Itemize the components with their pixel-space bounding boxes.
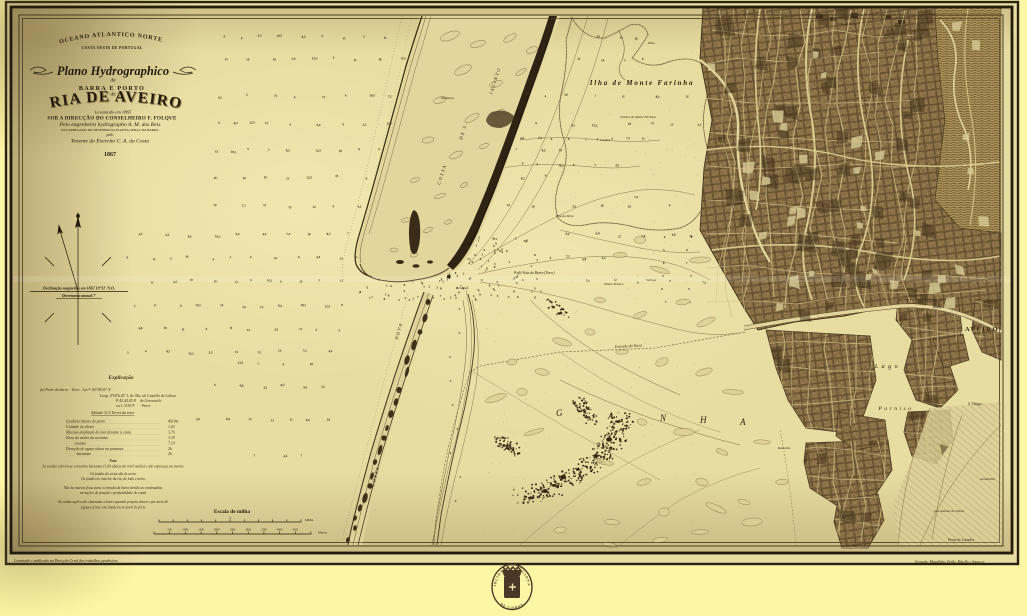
svg-text:Monte Branco: Monte Branco bbox=[603, 282, 624, 286]
svg-text:13: 13 bbox=[248, 417, 252, 421]
svg-text:Pesqueira: Pesqueira bbox=[493, 436, 509, 440]
svg-text:10,2: 10,2 bbox=[300, 303, 306, 308]
svg-text:5,6: 5,6 bbox=[291, 57, 296, 61]
svg-text:Declinação magnetica em 1867 1: Declinação magnetica em 1867 19°31' N.O. bbox=[42, 286, 115, 291]
svg-text:As embarcações são chamadas a: As embarcações são chamadas a barra quan… bbox=[57, 500, 168, 504]
svg-text:4h10m: 4h10m bbox=[168, 420, 179, 424]
svg-text:signaes feitos com bandeira no: signaes feitos com bandeira no farol do … bbox=[81, 506, 146, 510]
svg-text:G: G bbox=[556, 408, 563, 418]
svg-text:3,5: 3,5 bbox=[697, 123, 702, 127]
svg-text:13: 13 bbox=[235, 350, 239, 354]
svg-text:10,2: 10,2 bbox=[230, 150, 236, 155]
svg-text:Lago: Lago bbox=[874, 364, 901, 370]
svg-text:N: N bbox=[659, 413, 667, 423]
svg-text:Escala de milha: Escala de milha bbox=[214, 509, 251, 515]
svg-text:Parniso: Parniso bbox=[878, 406, 914, 412]
svg-text:6,8: 6,8 bbox=[138, 326, 143, 330]
svg-text:1867: 1867 bbox=[104, 152, 116, 158]
svg-text:7,5: 7,5 bbox=[259, 305, 263, 309]
svg-text:Estabelecimento do porto: Estabelecimento do porto bbox=[65, 420, 105, 424]
svg-text:10,2: 10,2 bbox=[215, 234, 221, 238]
svg-text:3000: 3000 bbox=[245, 529, 251, 532]
svg-text:12,5: 12,5 bbox=[195, 303, 201, 307]
svg-text:Marinora: Marinora bbox=[440, 96, 454, 100]
svg-text:Decremento annual 7': Decremento annual 7' bbox=[61, 294, 96, 298]
svg-text:1500: 1500 bbox=[198, 529, 204, 532]
svg-text:Estrada do Norte: Estrada do Norte bbox=[905, 28, 929, 32]
svg-text:Tenente do Exercito C. A. da C: Tenente do Exercito C. A. da Costa bbox=[71, 139, 150, 145]
svg-text:8,2: 8,2 bbox=[542, 148, 547, 152]
svg-text:Milha: Milha bbox=[305, 518, 314, 522]
svg-text:Mira: Mira bbox=[647, 41, 655, 45]
svg-text:12,5: 12,5 bbox=[315, 149, 321, 153]
svg-text:· · vasante: · · vasante bbox=[66, 442, 86, 446]
svg-text:AVEIRO: AVEIRO bbox=[965, 326, 999, 333]
svg-text:variações de posição e profund: variações de posição e profundidade do c… bbox=[80, 491, 146, 495]
svg-text:7,5: 7,5 bbox=[626, 136, 631, 140]
svg-text:12,5: 12,5 bbox=[325, 304, 331, 308]
svg-text:½: ½ bbox=[229, 516, 232, 520]
svg-text:4,2: 4,2 bbox=[218, 95, 222, 99]
svg-text:Ilha de Monte Farinha: Ilha de Monte Farinha bbox=[589, 79, 695, 87]
svg-text:6,8: 6,8 bbox=[672, 233, 677, 237]
svg-text:Hora da media da enchente: Hora da media da enchente bbox=[65, 436, 108, 440]
svg-text:8,2: 8,2 bbox=[236, 232, 240, 236]
svg-text:4,2: 4,2 bbox=[357, 204, 361, 208]
svg-text:12,5: 12,5 bbox=[249, 120, 255, 125]
svg-text:Perdida: Perdida bbox=[455, 286, 467, 290]
svg-text:· · baixamar: · · baixamar bbox=[66, 452, 92, 456]
svg-text:pelo: pelo bbox=[106, 132, 114, 137]
svg-text:ou 1. 8.55 P · · Paris: ou 1. 8.55 P · · Paris bbox=[116, 404, 151, 408]
svg-text:da: da bbox=[111, 79, 117, 84]
svg-text:7,5: 7,5 bbox=[286, 232, 290, 236]
svg-text:8,2: 8,2 bbox=[188, 234, 192, 238]
svg-text:Levantado em 1865: Levantado em 1865 bbox=[94, 110, 132, 115]
svg-text:12,5: 12,5 bbox=[238, 361, 244, 365]
svg-text:9,4: 9,4 bbox=[596, 231, 600, 235]
svg-text:S. Thiago: S. Thiago bbox=[968, 402, 982, 406]
svg-text:2h: 2h bbox=[168, 452, 172, 456]
svg-text:12,5: 12,5 bbox=[312, 56, 318, 60]
svg-text:8,2: 8,2 bbox=[286, 148, 291, 152]
svg-text:11: 11 bbox=[622, 94, 625, 98]
svg-text:Duração de aguas altura na pra: Duração de aguas altura na praamar bbox=[65, 447, 124, 451]
svg-text:COSTA OESTE DE PORTUGAL: COSTA OESTE DE PORTUGAL bbox=[81, 46, 142, 50]
svg-text:Ponte de Cacador: Ponte de Cacador bbox=[947, 538, 975, 542]
svg-text:Unidade de altura: Unidade de altura bbox=[66, 425, 94, 429]
svg-text:(a) Porte da barra - Torre L: (a) Porte da barra - Torre Lat.de 40°38'… bbox=[40, 388, 111, 392]
svg-text:12: 12 bbox=[263, 203, 267, 207]
svg-text:Metros: Metros bbox=[318, 531, 328, 535]
svg-text:8,2: 8,2 bbox=[302, 35, 306, 39]
svg-text:12,5: 12,5 bbox=[592, 123, 598, 128]
svg-text:3,5: 3,5 bbox=[362, 123, 366, 127]
svg-text:500: 500 bbox=[168, 529, 173, 532]
svg-text:5,6: 5,6 bbox=[196, 417, 201, 421]
svg-text:Altitude 32.5 Torres da torre: Altitude 32.5 Torres da torre bbox=[90, 411, 135, 415]
svg-text:S.ta Antonio do Tilloso: S.ta Antonio do Tilloso bbox=[934, 509, 965, 513]
svg-text:2000: 2000 bbox=[214, 529, 220, 532]
svg-text:9,4: 9,4 bbox=[317, 123, 321, 127]
svg-text:7,5: 7,5 bbox=[566, 255, 570, 259]
svg-text:8,2: 8,2 bbox=[234, 121, 239, 125]
svg-text:7,5: 7,5 bbox=[242, 203, 247, 207]
svg-text:7.10: 7.10 bbox=[168, 442, 175, 446]
svg-text:Ilha do Meio: Ilha do Meio bbox=[555, 214, 574, 218]
svg-text:Os fundos da costa são de arei: Os fundos da costa são de areia bbox=[90, 472, 136, 476]
svg-text:Sal: Sal bbox=[634, 195, 638, 199]
svg-text:8,2: 8,2 bbox=[656, 95, 661, 99]
svg-text:SOB A DIRECÇÃO DO CONSELHEIRO: SOB A DIRECÇÃO DO CONSELHEIRO F. FOLQUE bbox=[47, 116, 177, 122]
svg-text:1000: 1000 bbox=[183, 529, 189, 532]
svg-text:8,2: 8,2 bbox=[521, 176, 526, 180]
svg-text:Lavãos: Lavãos bbox=[599, 138, 610, 142]
svg-text:Poço Vista da Barra (Torre): Poço Vista da Barra (Torre) bbox=[513, 271, 555, 275]
svg-text:2500: 2500 bbox=[230, 529, 236, 532]
svg-text:10,2: 10,2 bbox=[369, 93, 375, 97]
svg-text:P 43.44.45 P. de Greenwich: P 43.44.45 P. de Greenwich bbox=[115, 399, 161, 403]
svg-text:Não ha marcas fixas para a ent: Não ha marcas fixas para a entrada da ba… bbox=[63, 486, 163, 490]
svg-text:10,2: 10,2 bbox=[276, 33, 282, 38]
svg-text:4,2: 4,2 bbox=[329, 349, 333, 353]
svg-text:Explicação: Explicação bbox=[107, 375, 134, 381]
svg-text:3.18: 3.18 bbox=[168, 436, 175, 440]
svg-text:12,5: 12,5 bbox=[306, 176, 312, 180]
svg-text:Long 4°54'6.25" L de Obs. do: Long 4°54'6.25" L de Obs. do Castello de… bbox=[99, 394, 176, 398]
svg-text:3,5: 3,5 bbox=[321, 385, 326, 389]
svg-text:Esteiro de Monte Farinha: Esteiro de Monte Farinha bbox=[619, 115, 655, 119]
svg-text:Gondesilho: Gondesilho bbox=[980, 477, 996, 481]
svg-text:12,5: 12,5 bbox=[400, 56, 406, 60]
svg-text:5,6: 5,6 bbox=[564, 93, 568, 97]
svg-text:4,2: 4,2 bbox=[262, 232, 267, 236]
svg-text:3,5: 3,5 bbox=[242, 305, 246, 309]
svg-text:12,5: 12,5 bbox=[188, 351, 194, 355]
svg-text:Ramalho: Ramalho bbox=[777, 446, 791, 450]
svg-text:4500: 4500 bbox=[293, 529, 299, 532]
svg-text:Maxima amplitude do mar devant: Maxima amplitude do mar devante a costa bbox=[65, 431, 131, 435]
svg-text:H: H bbox=[699, 415, 707, 425]
svg-text:11: 11 bbox=[299, 327, 302, 331]
svg-text:A: A bbox=[607, 411, 614, 421]
svg-text:5,6: 5,6 bbox=[306, 418, 310, 422]
svg-text:3,5: 3,5 bbox=[209, 350, 214, 354]
svg-text:10,2: 10,2 bbox=[558, 163, 564, 167]
svg-text:4000: 4000 bbox=[277, 529, 283, 532]
svg-text:A: A bbox=[739, 417, 746, 427]
svg-text:3500: 3500 bbox=[261, 529, 267, 532]
svg-text:Nota: Nota bbox=[108, 459, 116, 463]
svg-text:Levantado e publicado na Direc: Levantado e publicado na Direcção Geral … bbox=[13, 559, 118, 563]
svg-text:2h: 2h bbox=[168, 447, 172, 451]
svg-text:Villa do Norte: Villa do Norte bbox=[838, 22, 857, 26]
svg-text:Plano Hydrographico: Plano Hydrographico bbox=[57, 64, 169, 78]
